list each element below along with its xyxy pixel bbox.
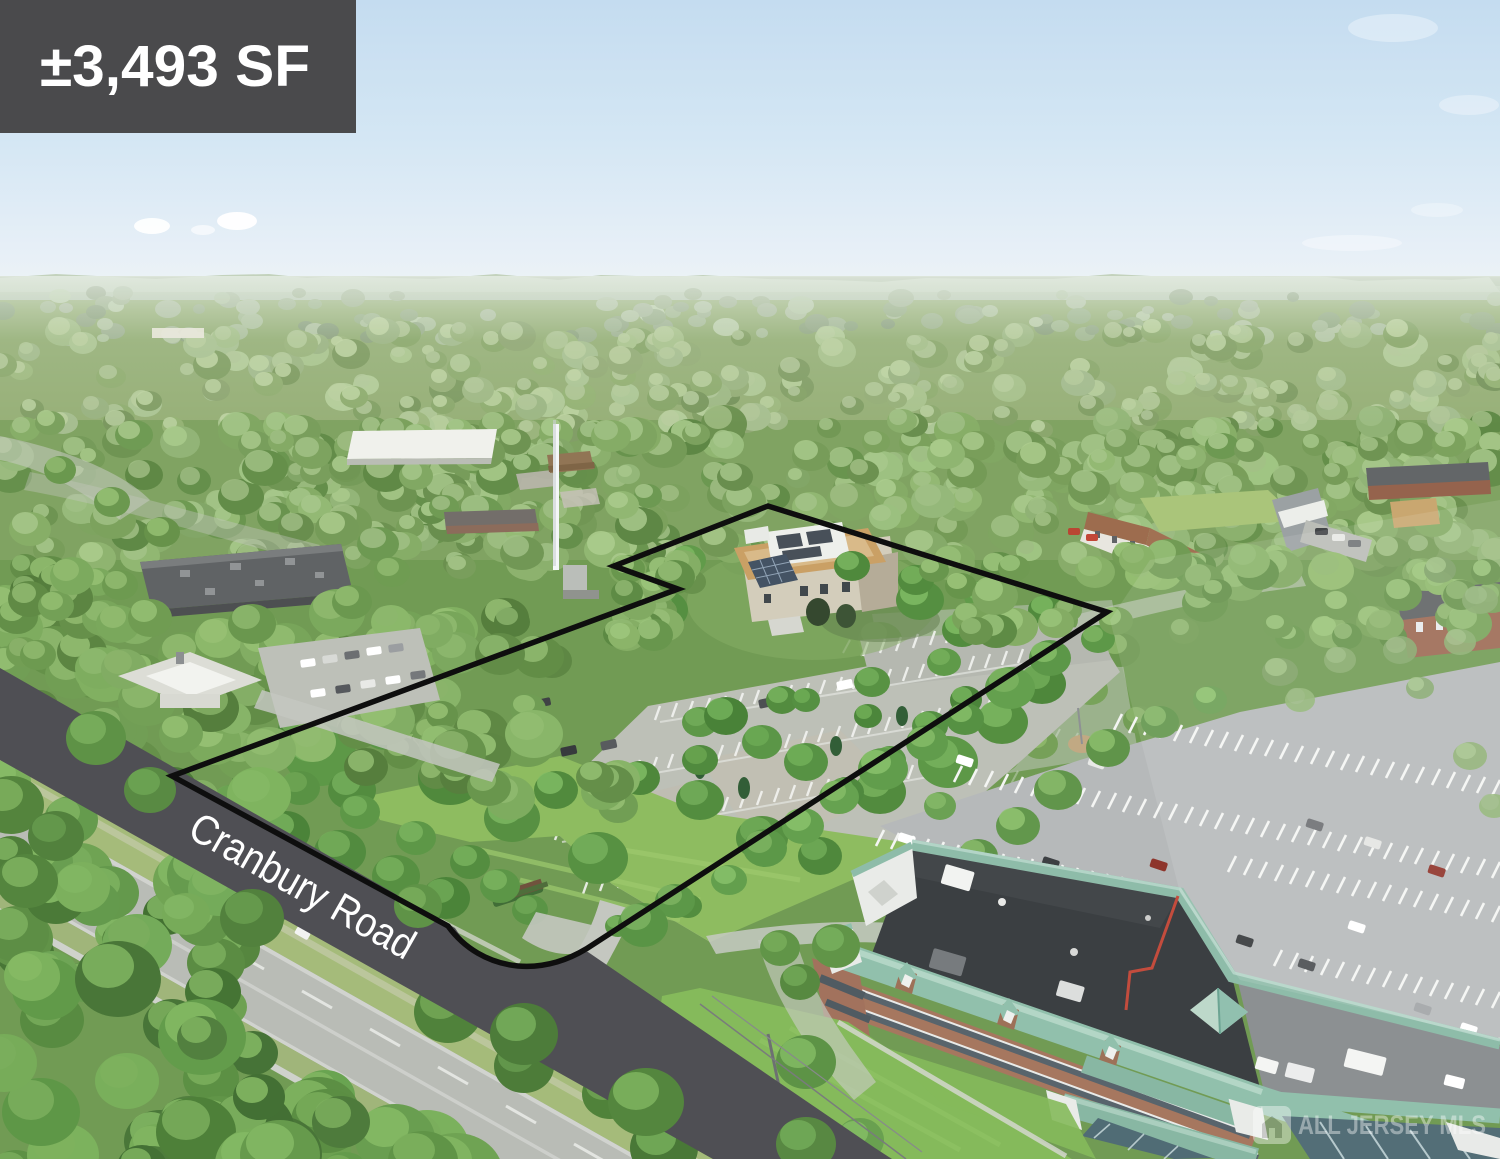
svg-text:±3,493 SF: ±3,493 SF [40,34,310,99]
svg-text:ALL JERSEY MLS: ALL JERSEY MLS [1298,1110,1486,1140]
